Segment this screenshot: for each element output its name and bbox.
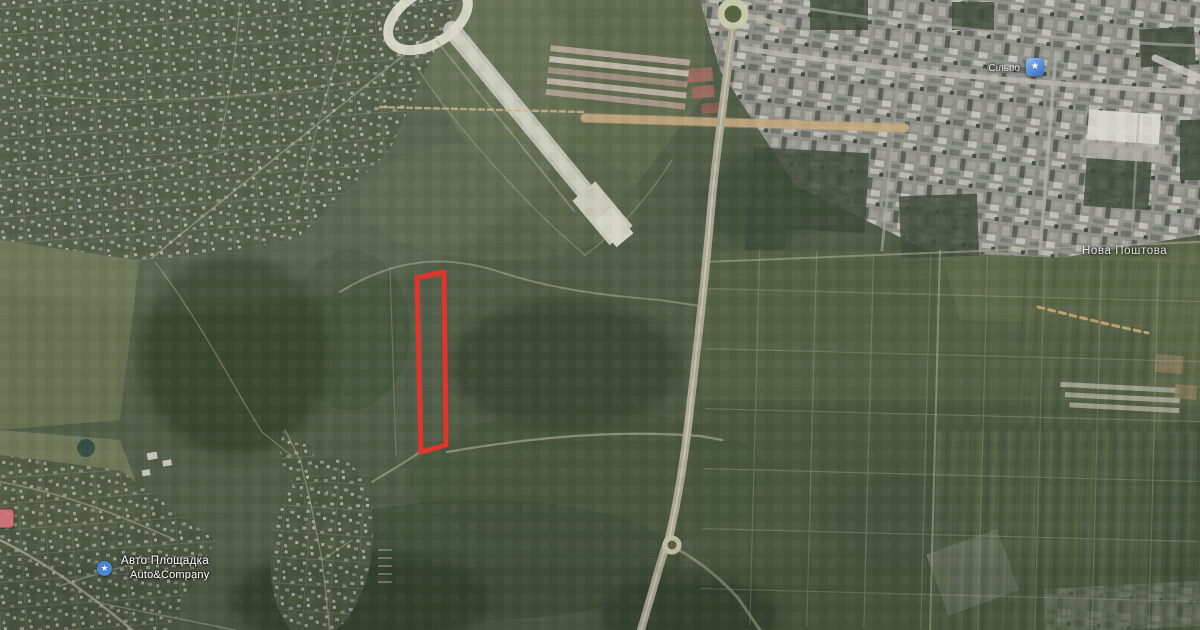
business-label-line2[interactable]: Auto&Company: [130, 569, 209, 582]
star-icon: ★: [1031, 62, 1040, 72]
map-imagery: [0, 0, 1200, 630]
star-icon: ★: [100, 564, 108, 573]
business-poi-icon[interactable]: ★: [97, 561, 112, 576]
supermarket-poi-icon[interactable]: ★: [1026, 58, 1044, 76]
business-label-line1[interactable]: Авто Площадка: [121, 555, 209, 568]
image-noise-overlay: [0, 0, 1200, 630]
edge-poi-icon[interactable]: [0, 509, 14, 528]
district-label: Нова Поштова: [1082, 245, 1167, 258]
satellite-map[interactable]: Сільпо ★ Нова Поштова ★ Авто Площадка Au…: [0, 0, 1200, 630]
supermarket-label[interactable]: Сільпо: [958, 63, 1020, 75]
